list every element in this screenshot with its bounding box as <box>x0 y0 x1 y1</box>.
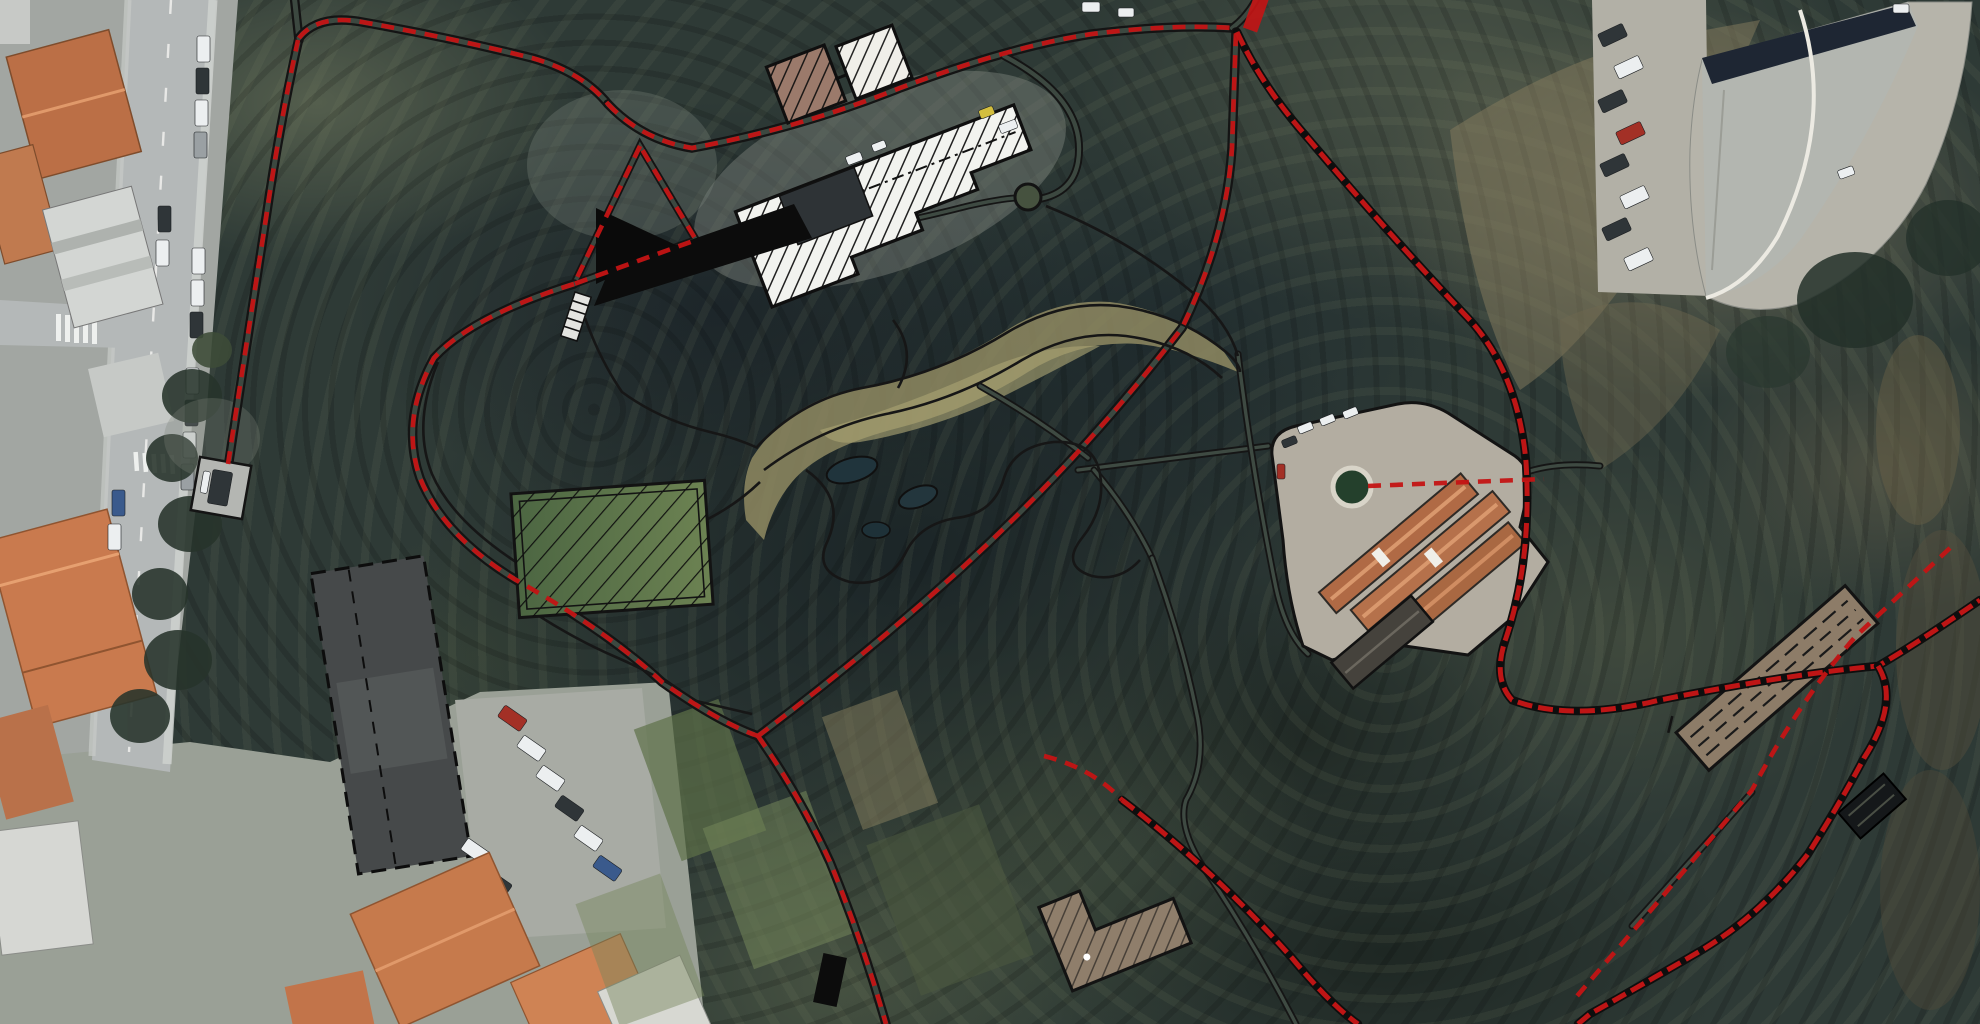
green-hatched-field <box>511 480 713 617</box>
right-edge-scrub <box>1876 335 1980 1010</box>
route-curl <box>1044 756 1122 800</box>
cul-de-sac-bulb <box>1015 184 1041 210</box>
route-stub-parking <box>191 457 252 519</box>
long-terraced-building <box>1662 574 1878 774</box>
l-shaped-building <box>1039 859 1191 990</box>
white-building <box>0 821 93 955</box>
junction-red-blob <box>1250 0 1262 30</box>
plan-overlay <box>0 0 1980 1024</box>
roundabout-circle <box>1333 468 1371 506</box>
stairs-marking <box>561 292 591 341</box>
pond <box>896 481 940 513</box>
map-canvas[interactable] <box>0 0 1980 1024</box>
bottom-left-district <box>285 556 1034 1024</box>
black-bar-structure <box>813 953 847 1007</box>
garden-band <box>744 302 1238 540</box>
pond <box>824 452 880 489</box>
pond-garden <box>744 302 1238 540</box>
